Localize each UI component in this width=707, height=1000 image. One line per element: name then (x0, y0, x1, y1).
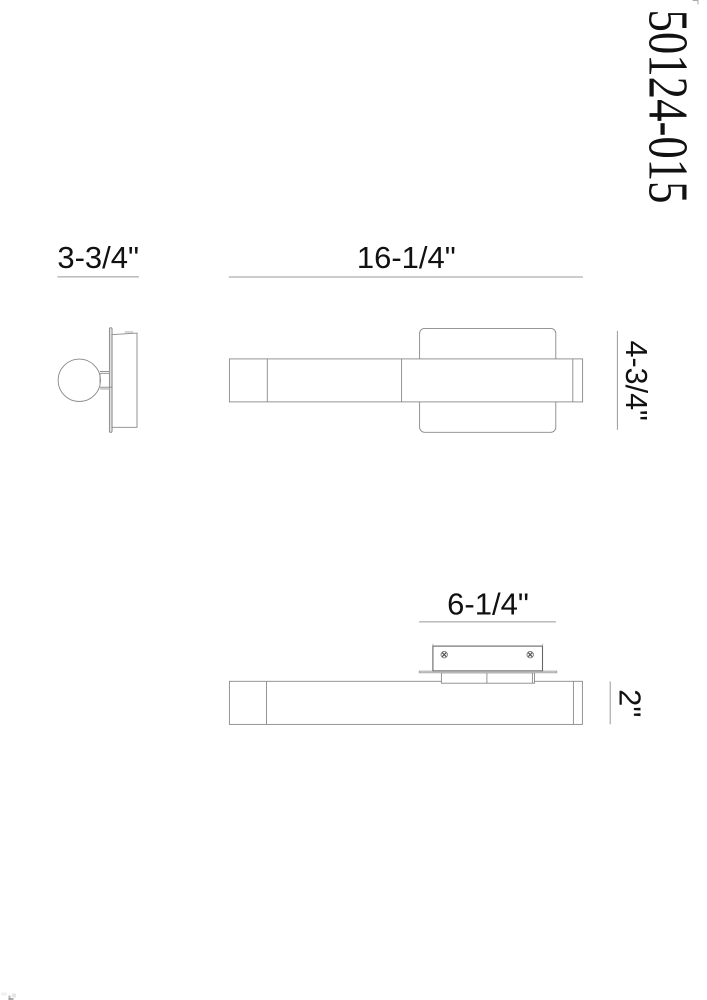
svg-text:4-3/4": 4-3/4" (619, 341, 653, 421)
svg-text:2": 2" (612, 689, 647, 717)
svg-text:16-1/4": 16-1/4" (357, 240, 456, 275)
svg-text:50124-015: 50124-015 (637, 10, 699, 204)
svg-text:6-1/4": 6-1/4" (447, 586, 529, 621)
svg-text:3-3/4": 3-3/4" (57, 240, 139, 275)
